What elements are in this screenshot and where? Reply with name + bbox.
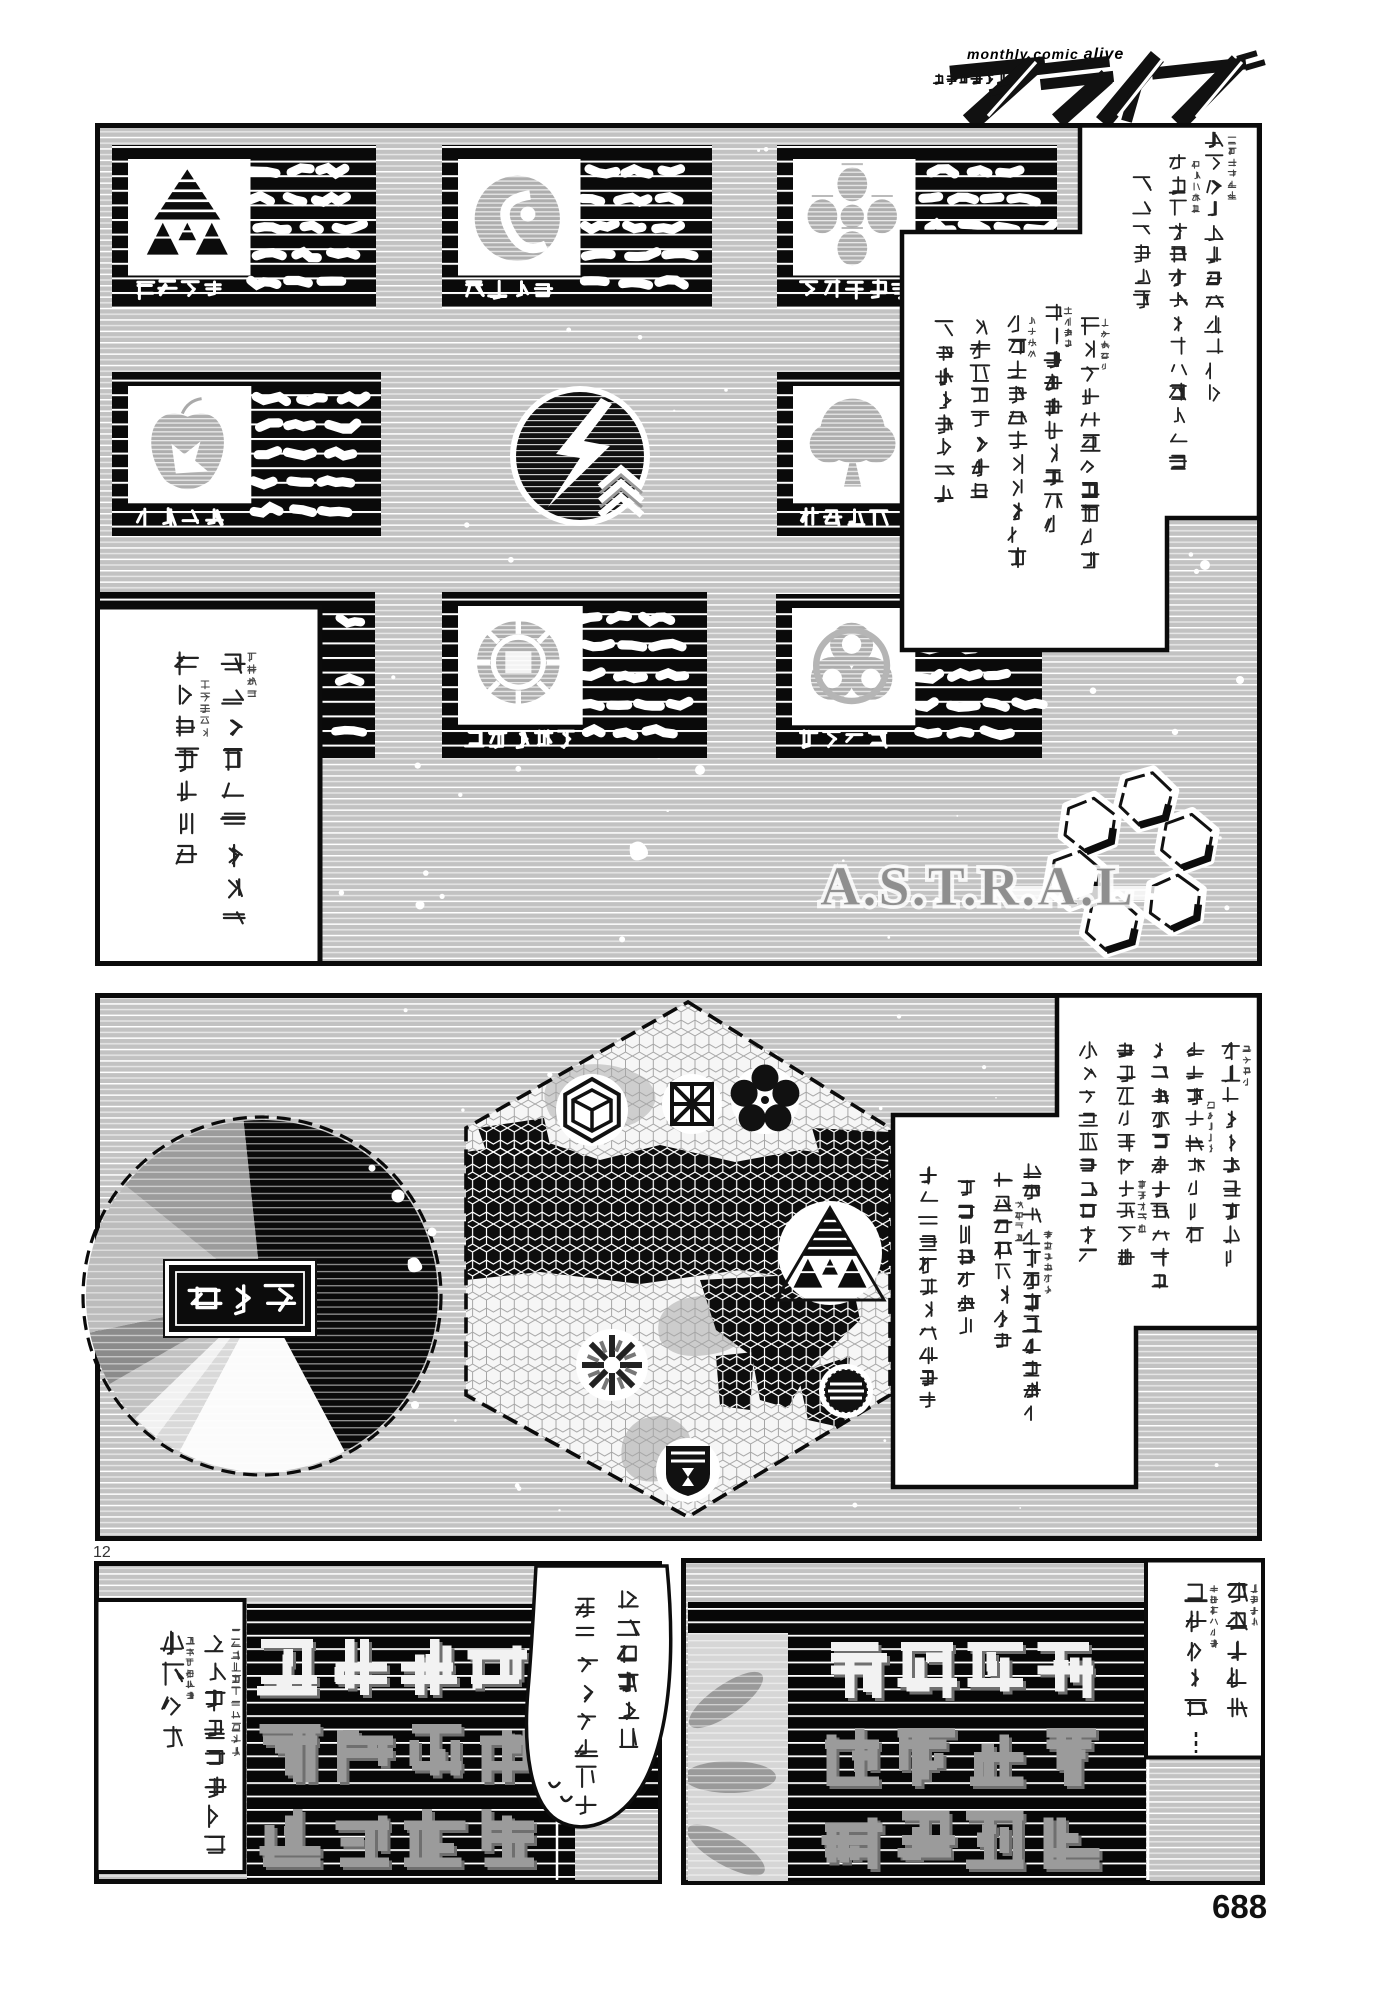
svg-text:A.S.T.R.A.L: A.S.T.R.A.L	[820, 856, 1135, 918]
svg-text:688: 688	[1212, 1888, 1267, 1925]
svg-text:12: 12	[93, 1544, 111, 1561]
